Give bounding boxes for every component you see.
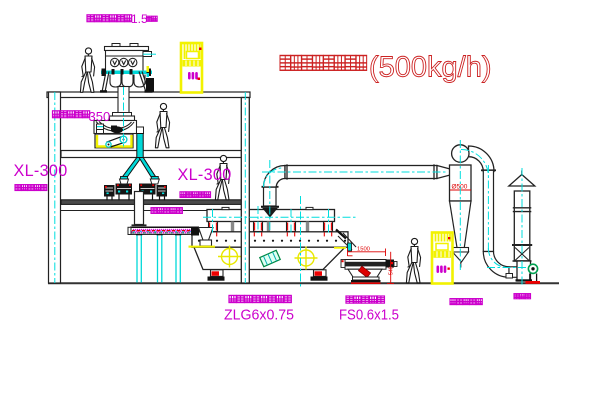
svg-text:XL-300: XL-300 [178, 166, 232, 184]
svg-text:1.5: 1.5 [131, 12, 148, 26]
svg-text:540: 540 [389, 266, 395, 275]
svg-text:350: 350 [89, 109, 111, 124]
svg-text:Ø500: Ø500 [452, 184, 468, 191]
svg-text:1500: 1500 [357, 247, 370, 253]
svg-text:ZLG6x0.75: ZLG6x0.75 [224, 308, 294, 324]
svg-text:FS0.6x1.5: FS0.6x1.5 [339, 308, 399, 324]
svg-text:(500kg/h): (500kg/h) [369, 52, 492, 84]
svg-text:XL-300: XL-300 [14, 162, 68, 180]
